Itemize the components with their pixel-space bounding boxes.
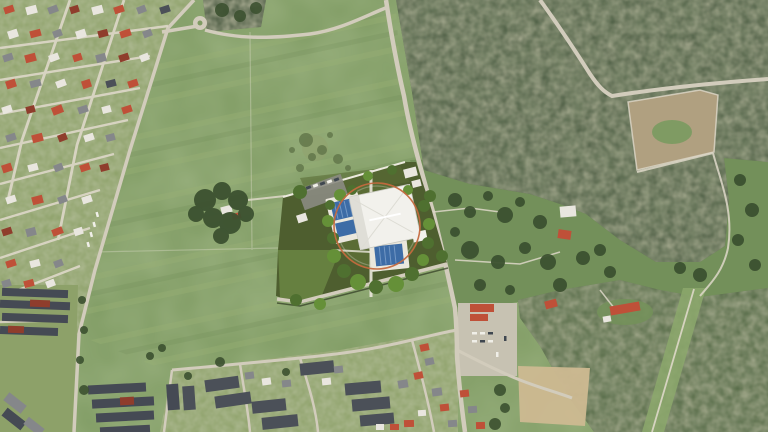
- map-feature: [450, 227, 460, 237]
- map-feature: [350, 274, 366, 290]
- map-feature: [461, 241, 479, 259]
- map-feature: [417, 254, 429, 266]
- map-feature: [553, 278, 567, 292]
- map-feature: [333, 154, 343, 164]
- map-feature: [594, 244, 606, 256]
- map-feature: [388, 276, 404, 292]
- map-feature: [158, 344, 166, 352]
- map-feature: [519, 242, 531, 254]
- map-feature: [422, 237, 434, 249]
- map-feature: [322, 215, 334, 227]
- map-feature: [215, 3, 229, 17]
- map-feature: [250, 2, 262, 14]
- map-feature: [166, 384, 180, 411]
- map-feature: [337, 264, 351, 278]
- map-feature: [387, 165, 397, 175]
- map-feature: [418, 410, 426, 417]
- map-feature: [146, 352, 154, 360]
- map-feature: [184, 372, 192, 380]
- map-feature: [290, 294, 302, 306]
- map-feature: [234, 10, 246, 22]
- map-feature: [76, 356, 84, 364]
- map-feature: [182, 386, 196, 411]
- map-feature: [363, 171, 373, 181]
- map-feature: [470, 314, 488, 321]
- map-feature: [334, 366, 344, 374]
- map-feature: [405, 267, 419, 281]
- map-feature: [327, 132, 333, 138]
- map-feature: [515, 197, 525, 207]
- map-feature: [500, 403, 510, 413]
- map-feature: [483, 191, 493, 201]
- map-feature: [213, 182, 231, 200]
- map-feature: [293, 185, 307, 199]
- map-feature: [468, 406, 477, 414]
- map-feature: [317, 145, 327, 155]
- map-feature: [345, 165, 351, 171]
- map-feature: [238, 206, 254, 222]
- map-feature: [390, 424, 399, 430]
- map-feature: [460, 390, 470, 398]
- aerial-map: [0, 0, 768, 432]
- map-feature: [79, 385, 89, 395]
- map-feature: [497, 207, 513, 223]
- map-feature: [213, 228, 229, 244]
- map-feature: [327, 249, 341, 263]
- map-feature: [296, 164, 304, 172]
- map-feature: [245, 371, 255, 379]
- map-feature: [560, 205, 577, 217]
- map-feature: [474, 279, 486, 291]
- aerial-map-canvas: [0, 0, 768, 432]
- map-feature: [480, 340, 485, 343]
- map-feature: [604, 266, 616, 278]
- map-feature: [472, 332, 477, 335]
- map-feature: [488, 340, 493, 343]
- map-feature: [376, 424, 384, 430]
- map-feature: [78, 296, 86, 304]
- map-feature: [476, 422, 485, 429]
- map-feature: [282, 380, 292, 388]
- map-feature: [289, 147, 295, 153]
- map-feature: [480, 332, 485, 335]
- map-feature: [505, 285, 515, 295]
- map-feature: [674, 262, 686, 274]
- map-feature: [504, 336, 507, 341]
- map-feature: [496, 352, 499, 357]
- map-feature: [436, 250, 448, 262]
- map-feature: [576, 251, 590, 265]
- map-feature: [491, 255, 505, 269]
- map-feature: [215, 357, 225, 367]
- map-feature: [448, 420, 457, 428]
- map-feature: [369, 280, 383, 294]
- roundabout: [193, 16, 207, 30]
- map-feature: [533, 215, 547, 229]
- map-feature: [464, 206, 476, 218]
- map-feature: [120, 397, 134, 406]
- map-feature: [489, 418, 501, 430]
- map-feature: [80, 326, 88, 334]
- map-feature: [749, 259, 761, 271]
- map-feature: [423, 218, 435, 230]
- map-feature: [282, 368, 290, 376]
- map-feature: [325, 200, 335, 210]
- map-feature: [188, 206, 204, 222]
- map-feature: [314, 298, 326, 310]
- map-feature: [745, 203, 759, 217]
- map-feature: [494, 384, 506, 396]
- map-feature: [262, 377, 272, 385]
- map-feature: [732, 234, 744, 246]
- map-feature: [557, 229, 571, 240]
- map-feature: [540, 254, 556, 270]
- map-feature: [431, 387, 442, 396]
- map-feature: [424, 190, 436, 202]
- map-feature: [308, 153, 316, 161]
- map-feature: [397, 379, 408, 389]
- map-feature: [299, 133, 313, 147]
- map-feature: [448, 193, 462, 207]
- map-feature: [30, 300, 50, 308]
- map-feature: [470, 304, 494, 312]
- map-feature: [488, 332, 493, 335]
- map-feature: [8, 326, 24, 334]
- map-feature: [734, 174, 746, 186]
- map-feature: [418, 200, 430, 212]
- map-feature: [440, 404, 450, 412]
- map-feature: [472, 340, 477, 343]
- map-feature: [322, 378, 332, 386]
- map-feature: [404, 420, 414, 427]
- construction-area: [518, 366, 590, 426]
- map-feature: [693, 268, 707, 282]
